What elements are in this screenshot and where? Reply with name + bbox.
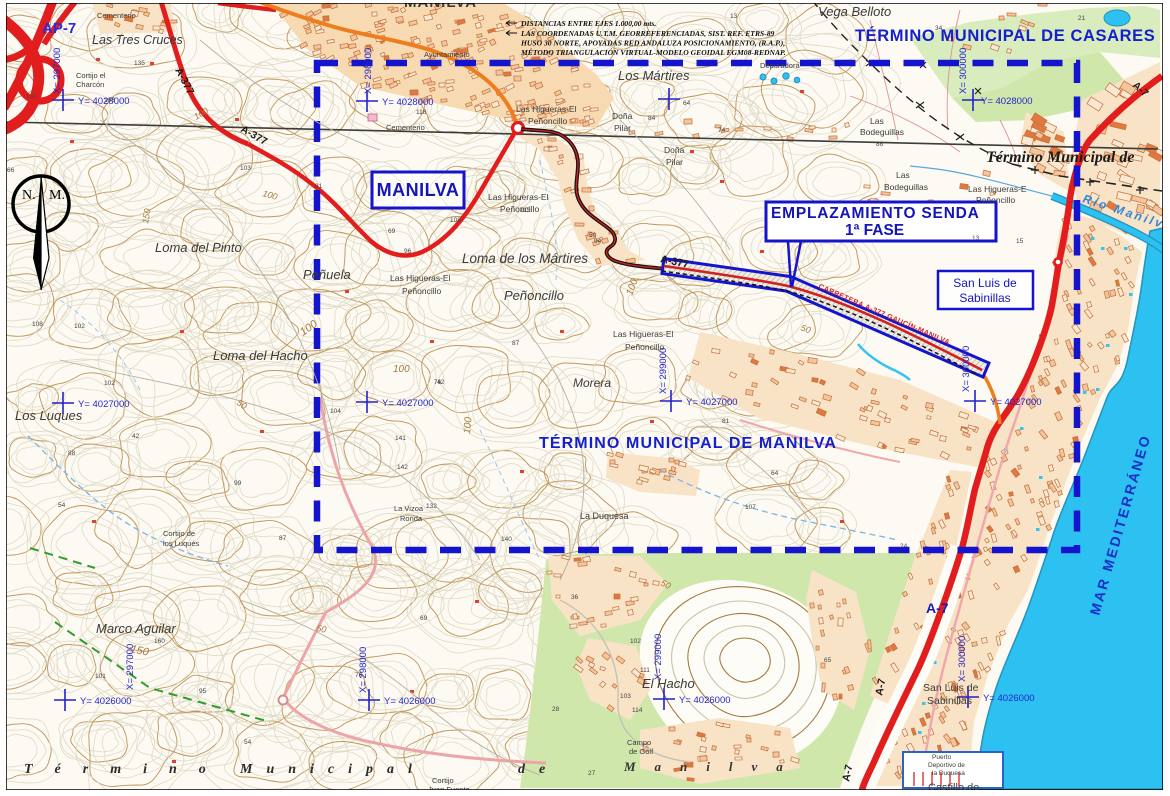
svg-text:108: 108: [32, 321, 43, 328]
svg-text:de Golf: de Golf: [629, 747, 654, 756]
svg-text:Bodeguillas: Bodeguillas: [884, 182, 928, 192]
svg-text:Y= 4027000: Y= 4027000: [990, 397, 1042, 408]
svg-text:Marco Aguilar: Marco Aguilar: [96, 621, 176, 636]
svg-text:Y= 4028000: Y= 4028000: [981, 96, 1033, 107]
svg-text:64: 64: [683, 100, 691, 107]
svg-text:TÉRMINO MUNICIPAL DE MANILVA: TÉRMINO MUNICIPAL DE MANILVA: [539, 433, 837, 452]
svg-text:Y= 4026000: Y= 4026000: [384, 696, 436, 707]
svg-text:81: 81: [315, 183, 323, 190]
svg-text:140: 140: [501, 536, 512, 543]
svg-text:M.: M.: [49, 188, 65, 203]
svg-text:Pilar: Pilar: [614, 123, 631, 133]
svg-text:87: 87: [512, 340, 520, 347]
svg-text:Puerto: Puerto: [932, 754, 952, 761]
svg-text:104: 104: [330, 408, 341, 415]
svg-text:65: 65: [824, 657, 832, 664]
svg-text:El Hacho: El Hacho: [642, 676, 695, 691]
svg-text:Cementerio: Cementerio: [386, 123, 425, 132]
svg-text:Vega Belloto: Vega Belloto: [818, 4, 891, 19]
svg-text:76: 76: [355, 672, 363, 679]
svg-text:102: 102: [104, 380, 115, 387]
svg-text:132: 132: [426, 503, 437, 510]
svg-text:54: 54: [58, 502, 66, 509]
svg-text:84: 84: [648, 115, 656, 122]
svg-text:Los Luques: Los Luques: [15, 408, 83, 423]
svg-text:135: 135: [134, 60, 145, 67]
svg-text:102: 102: [630, 638, 641, 645]
svg-text:EMPLAZAMIENTO SENDA: EMPLAZAMIENTO SENDA: [771, 205, 980, 222]
svg-text:Los Mártires: Los Mártires: [618, 68, 690, 83]
svg-text:Municipal: Municipal: [239, 762, 426, 777]
svg-text:Término: Término: [24, 762, 228, 777]
svg-text:N.: N.: [22, 188, 36, 203]
svg-text:114: 114: [632, 707, 643, 714]
svg-text:Sabinillas: Sabinillas: [927, 695, 972, 707]
svg-text:103: 103: [620, 693, 631, 700]
svg-text:50: 50: [316, 623, 328, 635]
svg-text:DISTANCIAS ENTRE EJES 1.000,00: DISTANCIAS ENTRE EJES 1.000,00 mts.: [520, 19, 656, 28]
svg-text:27: 27: [588, 770, 596, 777]
svg-text:Loma del Hacho: Loma del Hacho: [213, 348, 308, 363]
svg-text:Las Higueras-El: Las Higueras-El: [488, 192, 549, 202]
svg-text:AP-7: AP-7: [42, 20, 76, 37]
svg-text:Término Municipal de: Término Municipal de: [986, 149, 1134, 166]
svg-text:Las Higueras-El: Las Higueras-El: [390, 273, 451, 283]
svg-text:X= 299000: X= 299000: [653, 634, 664, 680]
svg-text:115: 115: [520, 207, 531, 214]
svg-text:A-7: A-7: [926, 600, 949, 616]
svg-text:66: 66: [7, 167, 15, 174]
svg-text:Peñoncillo: Peñoncillo: [528, 116, 567, 126]
svg-text:Las Higueras-El: Las Higueras-El: [516, 104, 577, 114]
svg-text:81: 81: [722, 418, 730, 425]
svg-text:TÉRMINO MUNICIPAL DE CASARES: TÉRMINO MUNICIPAL DE CASARES: [855, 26, 1155, 45]
svg-text:34: 34: [935, 25, 943, 32]
svg-text:Peñoncillo: Peñoncillo: [402, 286, 441, 296]
svg-text:de: de: [518, 762, 559, 777]
svg-text:28: 28: [552, 706, 560, 713]
svg-text:100: 100: [393, 364, 410, 375]
svg-text:Campo: Campo: [627, 738, 651, 747]
svg-text:24: 24: [900, 543, 908, 550]
svg-text:54: 54: [244, 739, 252, 746]
svg-text:111: 111: [640, 667, 650, 674]
svg-text:X= 298000: X= 298000: [358, 647, 369, 693]
svg-text:Cortijo: Cortijo: [432, 776, 454, 785]
svg-text:Doña: Doña: [664, 145, 685, 155]
svg-text:Morera: Morera: [573, 376, 611, 390]
svg-text:69: 69: [388, 228, 396, 235]
svg-text:13: 13: [730, 13, 738, 20]
svg-text:Las: Las: [870, 116, 884, 126]
svg-text:LAS COORDENADAS U.T.M. GEORREF: LAS COORDENADAS U.T.M. GEORREFERENCIADAS…: [520, 29, 775, 38]
svg-text:Las: Las: [896, 170, 910, 180]
svg-text:99: 99: [234, 480, 242, 487]
svg-text:Y= 4026000: Y= 4026000: [983, 693, 1035, 704]
svg-text:Y= 4027000: Y= 4027000: [686, 397, 738, 408]
svg-text:Cortijo de: Cortijo de: [163, 529, 195, 538]
svg-text:Las Higueras-E: Las Higueras-E: [968, 184, 1027, 194]
svg-text:Peñuela: Peñuela: [303, 267, 351, 282]
svg-text:50: 50: [589, 232, 597, 239]
svg-text:Cementerio: Cementerio: [97, 11, 136, 20]
svg-text:X= 297000: X= 297000: [52, 48, 63, 94]
svg-text:Loma del Pinto: Loma del Pinto: [155, 240, 242, 255]
svg-text:131: 131: [26, 93, 37, 100]
svg-text:Charcón: Charcón: [76, 80, 104, 89]
svg-text:95: 95: [199, 688, 207, 695]
svg-text:86: 86: [876, 141, 884, 148]
svg-text:Peñoncillo: Peñoncillo: [504, 288, 564, 303]
svg-text:X= 300000: X= 300000: [957, 636, 968, 682]
svg-text:87: 87: [279, 535, 287, 542]
svg-text:Manilva: Manilva: [623, 759, 802, 774]
svg-text:X= 300000: X= 300000: [958, 48, 969, 94]
svg-text:118: 118: [416, 109, 427, 116]
svg-text:San Luis de: San Luis de: [953, 276, 1017, 290]
svg-text:Doña: Doña: [612, 111, 633, 121]
svg-text:Depuradora: Depuradora: [760, 61, 800, 70]
svg-text:15: 15: [1016, 238, 1024, 245]
svg-text:Y= 4026000: Y= 4026000: [679, 695, 731, 706]
svg-text:103: 103: [104, 97, 115, 104]
svg-text:Las Higueras-El: Las Higueras-El: [613, 329, 674, 339]
svg-text:X= 300000: X= 300000: [961, 346, 972, 392]
svg-text:13: 13: [972, 235, 980, 242]
svg-text:Bodeguillas: Bodeguillas: [860, 127, 904, 137]
svg-text:Deportivo de: Deportivo de: [928, 762, 965, 769]
svg-text:142: 142: [397, 464, 408, 471]
svg-text:74: 74: [718, 127, 726, 134]
svg-text:107: 107: [745, 504, 756, 511]
svg-text:103: 103: [240, 165, 251, 172]
svg-text:102: 102: [74, 323, 85, 330]
svg-text:96: 96: [404, 248, 412, 255]
svg-text:108: 108: [450, 217, 461, 224]
svg-text:MANILVA: MANILVA: [377, 180, 460, 200]
svg-text:Peñoncillo: Peñoncillo: [976, 195, 1015, 205]
svg-text:21: 21: [1078, 15, 1086, 22]
svg-text:los Luqués: los Luqués: [163, 539, 200, 548]
svg-text:69: 69: [420, 615, 428, 622]
svg-text:La Vizoa: La Vizoa: [394, 504, 424, 513]
svg-text:160: 160: [154, 638, 165, 645]
svg-text:X= 298000: X= 298000: [363, 48, 374, 94]
svg-text:64: 64: [771, 470, 779, 477]
svg-text:Loma de los Mártires: Loma de los Mártires: [462, 251, 588, 266]
svg-text:1ª FASE: 1ª FASE: [845, 222, 904, 239]
svg-text:La Duquesa: La Duquesa: [580, 511, 629, 521]
svg-text:100: 100: [462, 416, 474, 434]
svg-text:HUSO 30 NORTE, APOYADAS RED AN: HUSO 30 NORTE, APOYADAS RED ANDALUZA POS…: [520, 39, 785, 48]
svg-text:Y= 4026000: Y= 4026000: [80, 696, 132, 707]
svg-text:Las Tres Cruces: Las Tres Cruces: [92, 33, 183, 47]
svg-text:94: 94: [594, 238, 602, 245]
svg-text:X= 299000: X= 299000: [658, 348, 669, 394]
svg-text:42: 42: [437, 379, 445, 386]
svg-text:Pilar: Pilar: [666, 157, 683, 167]
svg-text:101: 101: [95, 673, 106, 680]
svg-text:la Duquesa: la Duquesa: [932, 770, 965, 777]
svg-text:Y= 4027000: Y= 4027000: [382, 398, 434, 409]
svg-text:36: 36: [571, 594, 579, 601]
svg-text:42: 42: [132, 433, 140, 440]
svg-text:Sabinillas: Sabinillas: [959, 291, 1010, 305]
svg-text:88: 88: [68, 450, 76, 457]
svg-text:141: 141: [395, 435, 406, 442]
svg-text:San Luis de: San Luis de: [923, 682, 979, 694]
svg-text:Ayuntamiento: Ayuntamiento: [424, 50, 470, 59]
svg-text:MÉTODO TRIANGULACIÓN VIRTUAL-M: MÉTODO TRIANGULACIÓN VIRTUAL-MODELO GEOI…: [520, 47, 786, 57]
svg-text:Ronda: Ronda: [400, 514, 423, 523]
svg-text:Y= 4028000: Y= 4028000: [382, 97, 434, 108]
svg-text:Y= 4027000: Y= 4027000: [78, 399, 130, 410]
svg-text:Cortijo el: Cortijo el: [76, 71, 106, 80]
svg-text:Peñoncillo: Peñoncillo: [625, 342, 664, 352]
